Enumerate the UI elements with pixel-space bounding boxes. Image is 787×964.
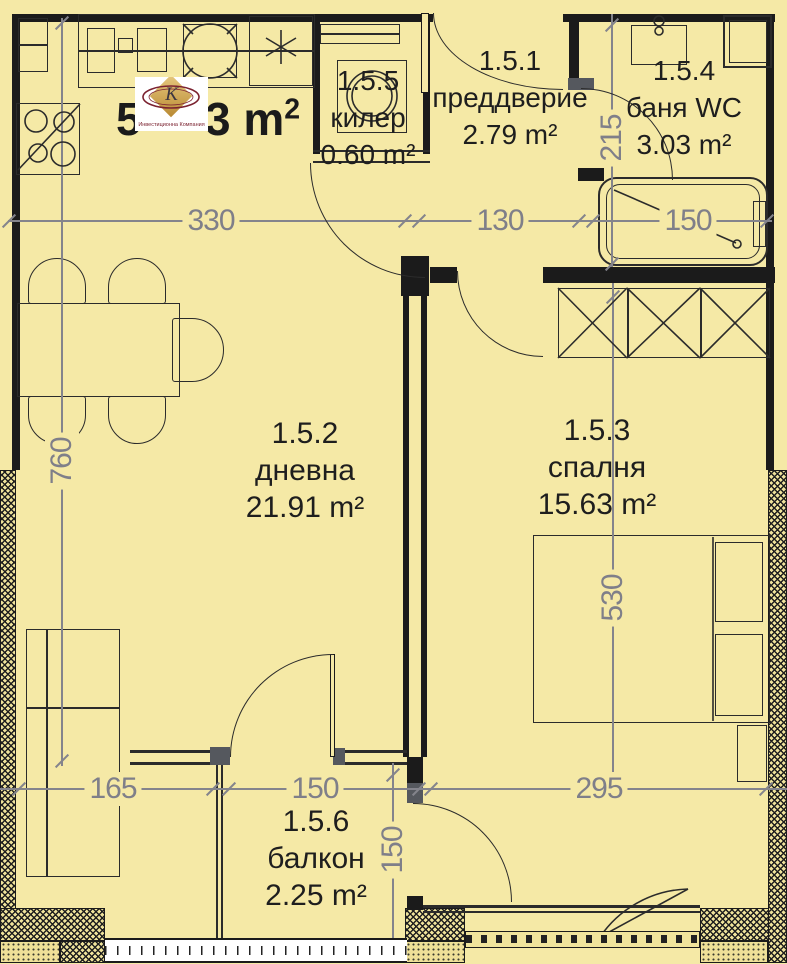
room-name: баня WC [626,89,742,126]
room-area: 15.63 m² [538,486,656,523]
room-number: 1.5.1 [432,42,587,79]
room-label-hallway: 1.5.1 преддверие 2.79 m² [432,42,587,153]
room-area: 2.79 m² [432,116,587,153]
room-number: 1.5.2 [246,415,364,452]
dim-295: 295 [570,772,627,806]
dim-215: 215 [595,109,629,166]
room-label-living: 1.5.2 дневна 21.91 m² [246,415,364,526]
room-label-balcony: 1.5.6 балкон 2.25 m² [265,803,367,914]
dim-150-bottom: 150 [286,772,343,806]
room-area: 21.91 m² [246,489,364,526]
room-label-closet: 1.5.5 килер 0.60 m² [321,62,416,173]
room-number: 1.5.6 [265,803,367,840]
room-name: преддверие [432,79,587,116]
room-number: 1.5.4 [626,52,742,89]
company-logo: К Инвестиционна Компания [135,77,208,131]
dim-150-top: 150 [659,204,716,238]
window-sill-dashes [466,935,699,943]
room-name: спалня [538,449,656,486]
dim-330: 330 [182,204,239,238]
room-name: дневна [246,452,364,489]
logo-monogram: К [135,84,208,106]
room-number: 1.5.3 [538,412,656,449]
floor-plan: 330 130 150 215 760 530 165 150 295 150 … [0,0,787,964]
dim-760: 760 [45,432,79,489]
room-area: 0.60 m² [321,136,416,173]
room-area: 2.25 m² [265,877,367,914]
dim-150-balcony: 150 [376,821,410,878]
room-area: 3.03 m² [626,126,742,163]
total-area-superscript: 2 [284,94,300,126]
room-label-bedroom: 1.5.3 спалня 15.63 m² [538,412,656,523]
dim-165: 165 [84,772,141,806]
total-area-suffix-text: 3 m [205,93,284,145]
room-number: 1.5.5 [321,62,416,99]
bedroom-window-sill [465,931,700,948]
logo-caption: Инвестиционна Компания [135,122,208,128]
room-name: балкон [265,840,367,877]
entrance-door-leaf [421,13,429,93]
railing-ticks [105,946,407,955]
room-name: килер [321,99,416,136]
room-label-bathroom: 1.5.4 баня WC 3.03 m² [626,52,742,163]
dim-130: 130 [471,204,528,238]
dim-530: 530 [596,569,630,626]
total-area-suffix: 3 m2 [205,92,300,146]
balcony-railing [105,938,407,963]
